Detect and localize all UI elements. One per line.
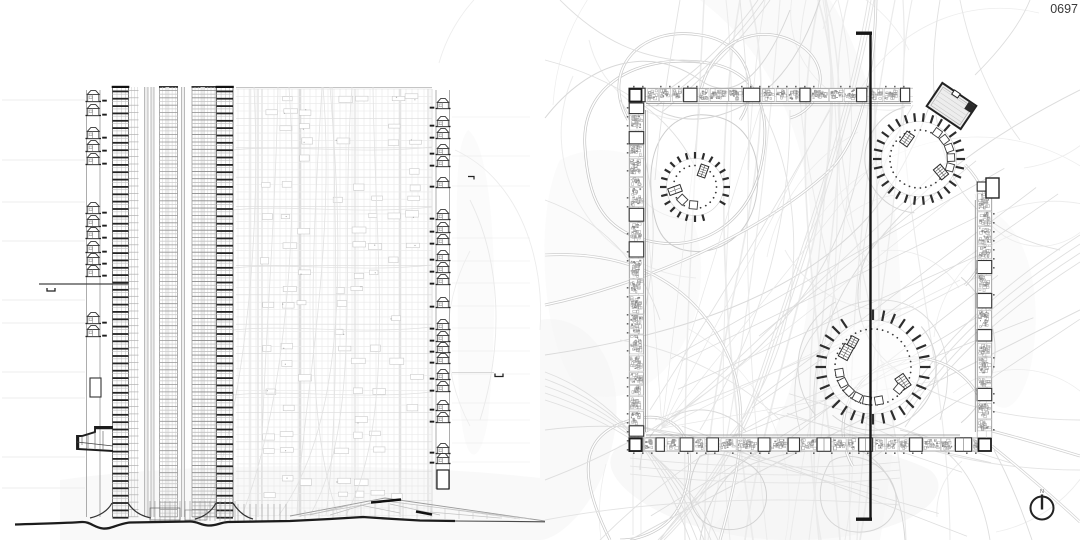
svg-text:N: N bbox=[1040, 489, 1044, 495]
svg-text:0697: 0697 bbox=[1050, 2, 1078, 16]
